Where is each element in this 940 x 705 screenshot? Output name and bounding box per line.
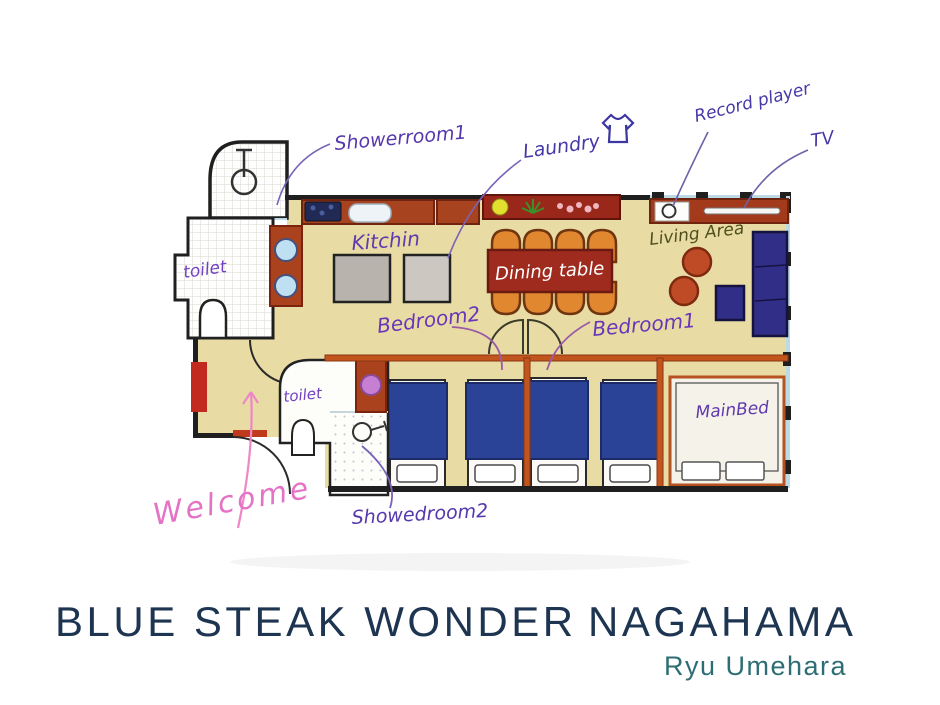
mainbed-divider-wall: [657, 358, 663, 488]
main-bed-room: [670, 377, 784, 485]
sink-bowl-icon: [275, 239, 297, 261]
bedroom-top-wall: [325, 355, 788, 361]
label-showedroom2: Showedroom2: [351, 500, 489, 529]
round-chair: [683, 248, 711, 276]
toilet-bowl-1-icon: [200, 300, 226, 338]
stove-burner: [311, 206, 316, 211]
record-disc-icon: [663, 205, 676, 218]
sink-bowl-icon: [275, 275, 297, 297]
property-title: BLUE STEAK WONDER: [55, 598, 577, 646]
label-tv: TV: [809, 127, 837, 152]
tv-icon: [704, 208, 780, 214]
label-laundry: Laundry: [522, 130, 602, 163]
stove-burner: [320, 211, 325, 216]
author-name: Ryu Umehara: [664, 651, 847, 682]
shower-room-1: [210, 142, 287, 219]
property-location: NAGAHAMA: [588, 598, 856, 646]
label-kitchen: Kitchin: [351, 226, 421, 255]
ottoman: [716, 286, 744, 320]
pillow: [726, 462, 764, 480]
entry-bottom-wall: [193, 433, 235, 438]
dining-area: Dining table: [483, 195, 620, 314]
label-welcome: Welcome: [150, 471, 314, 533]
bed: [601, 380, 660, 490]
tshirt-icon: [603, 115, 633, 142]
pillow: [682, 462, 720, 480]
entry-red-cabinet: [191, 362, 207, 412]
sofa: [753, 232, 787, 336]
bed: [466, 380, 525, 490]
bed: [529, 378, 588, 490]
kitchen-island-left: [334, 255, 390, 302]
bedroom-divider-wall: [524, 358, 530, 488]
kitchen-island-right: [404, 255, 450, 302]
kitchen-sink-icon: [349, 204, 391, 222]
plate-icon: [492, 199, 508, 215]
kitchen-counter-2: [437, 200, 479, 224]
sink-bowl-icon: [361, 375, 381, 395]
bottom-wall: [328, 486, 788, 492]
label-record-player: Record player: [692, 78, 813, 126]
toilet-bowl-2-icon: [292, 420, 314, 455]
shower-room-1-floor: [212, 144, 285, 216]
plan-shadow: [230, 553, 690, 571]
label-showerroom1: Showerroom1: [334, 122, 468, 155]
stove-burner: [329, 205, 334, 210]
hall-floor: [270, 306, 302, 362]
floor-plan-canvas: Dining table: [0, 0, 940, 705]
bed: [388, 380, 447, 490]
round-chair: [670, 277, 698, 305]
